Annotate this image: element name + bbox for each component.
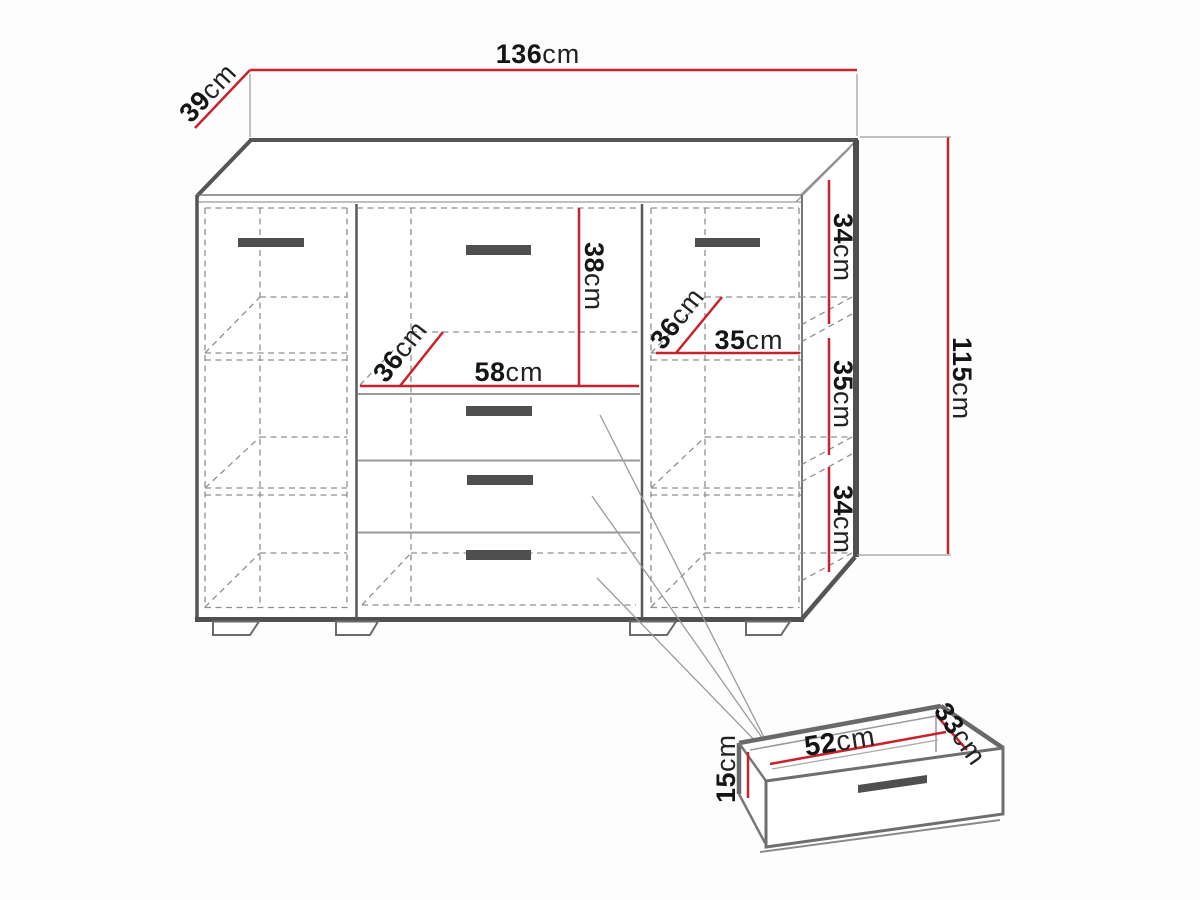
drawer-4-handle — [466, 550, 531, 560]
furniture-dimension-diagram: 136cm 39cm 38cm 58cm 36cm 36cm 35cm 34cm… — [0, 0, 1200, 900]
label-top-drawer-height: 38cm — [579, 242, 609, 311]
foot-1 — [213, 622, 259, 636]
label-right-bottom-section: 34cm — [828, 485, 858, 554]
top-drawer-handle — [466, 245, 531, 255]
label-drawer-front-height: 15cm — [711, 734, 741, 803]
label-total-depth: 39cm — [173, 57, 242, 128]
label-right-top-section: 34cm — [828, 213, 858, 282]
cabinet-top-face — [197, 140, 857, 195]
diagram-canvas: 136cm 39cm 38cm 58cm 36cm 36cm 35cm 34cm… — [0, 0, 1200, 900]
right-door-handle — [695, 238, 760, 247]
drawer-2-handle — [466, 406, 532, 416]
label-right-middle-section: 35cm — [828, 360, 858, 429]
foot-2 — [336, 622, 378, 636]
label-right-shelf-width: 35cm — [714, 325, 783, 355]
left-door-handle — [238, 238, 304, 247]
label-center-width: 58cm — [474, 357, 543, 387]
label-total-width: 136cm — [496, 39, 581, 69]
foot-4 — [746, 622, 790, 636]
foot-3 — [630, 622, 676, 636]
label-total-height: 115cm — [947, 337, 977, 420]
drawer-3-handle — [467, 475, 533, 485]
